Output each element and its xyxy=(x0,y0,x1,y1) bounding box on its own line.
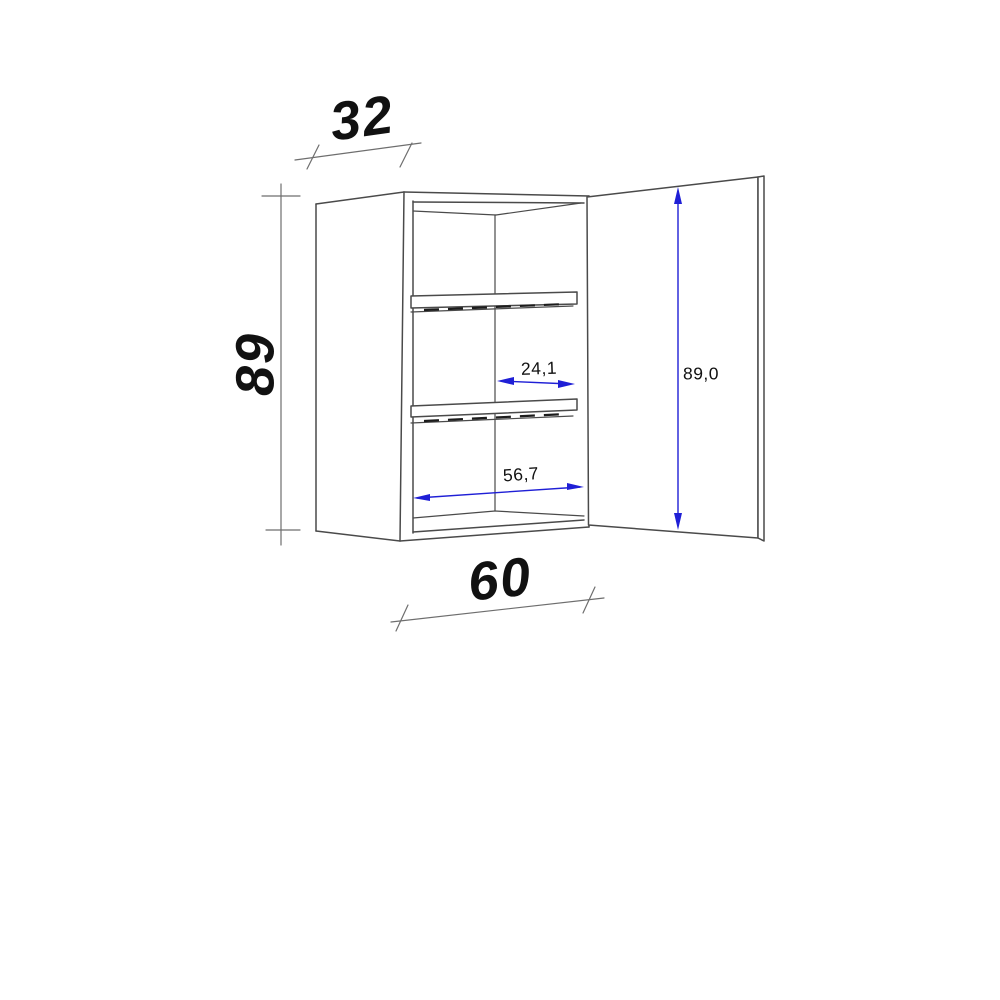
left-panel-bottom-edge xyxy=(316,531,400,541)
cabinet-dimension-drawing: 32 89 60 24,1 56,7 89,0 xyxy=(0,0,1000,1000)
height-label: 89 xyxy=(225,332,285,396)
front-left-outer-edge xyxy=(400,192,404,541)
floor-front-inner-edge xyxy=(413,520,584,532)
front-top-edge xyxy=(404,192,589,196)
front-bottom-edge xyxy=(400,527,589,541)
inner-horizontal-label: 24,1 xyxy=(521,358,558,379)
inner-width-label: 56,7 xyxy=(502,463,539,485)
inner-width-arrow-line xyxy=(417,487,580,498)
depth-label: 32 xyxy=(326,84,398,152)
top-back-edge-right xyxy=(496,203,581,215)
technical-drawing-page: 32 89 60 24,1 56,7 89,0 xyxy=(0,0,1000,1000)
depth-tick-right xyxy=(400,143,412,167)
top-inner-front-edge xyxy=(413,202,584,203)
inner-width-arrowhead-left xyxy=(413,494,430,501)
left-panel-top-edge xyxy=(316,192,404,204)
outer-dimension-lines xyxy=(262,143,604,631)
width-tick-left xyxy=(396,605,408,631)
width-label: 60 xyxy=(465,546,535,612)
inner-width-arrowhead-right xyxy=(567,483,584,490)
door-height-label: 89,0 xyxy=(683,363,719,383)
inner-horizontal-arrowhead-left xyxy=(497,377,514,385)
door-panel xyxy=(587,177,758,538)
floor-back-edge-left xyxy=(413,511,495,518)
inner-horizontal-arrowhead-right xyxy=(558,380,575,388)
door-edge-strip xyxy=(758,176,764,541)
floor-back-edge-right xyxy=(495,511,584,516)
top-back-edge-left xyxy=(413,211,496,215)
